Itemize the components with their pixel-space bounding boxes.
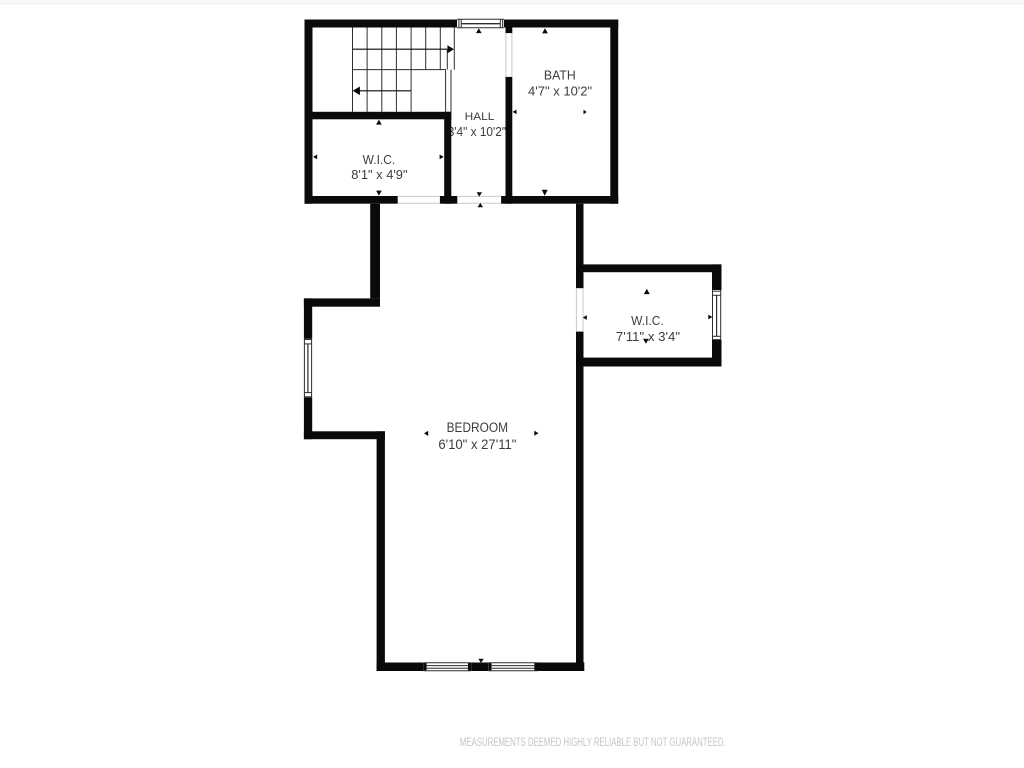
svg-text:W.I.C.: W.I.C. (631, 313, 664, 328)
svg-text:BEDROOM: BEDROOM (447, 420, 508, 435)
svg-text:7'11" x 3'4": 7'11" x 3'4" (616, 329, 680, 344)
svg-text:BATH: BATH (544, 68, 576, 83)
svg-text:4'7" x 10'2": 4'7" x 10'2" (528, 83, 592, 98)
svg-text:HALL: HALL (465, 111, 495, 123)
svg-text:6'10" x 27'11": 6'10" x 27'11" (438, 437, 516, 452)
svg-text:W.I.C.: W.I.C. (363, 152, 396, 167)
svg-text:3'4" x 10'2": 3'4" x 10'2" (448, 124, 507, 139)
svg-text:8'1" x 4'9": 8'1" x 4'9" (351, 167, 408, 182)
svg-text:MEASUREMENTS DEEMED HIGHLY REL: MEASUREMENTS DEEMED HIGHLY RELIABLE BUT … (460, 735, 726, 749)
